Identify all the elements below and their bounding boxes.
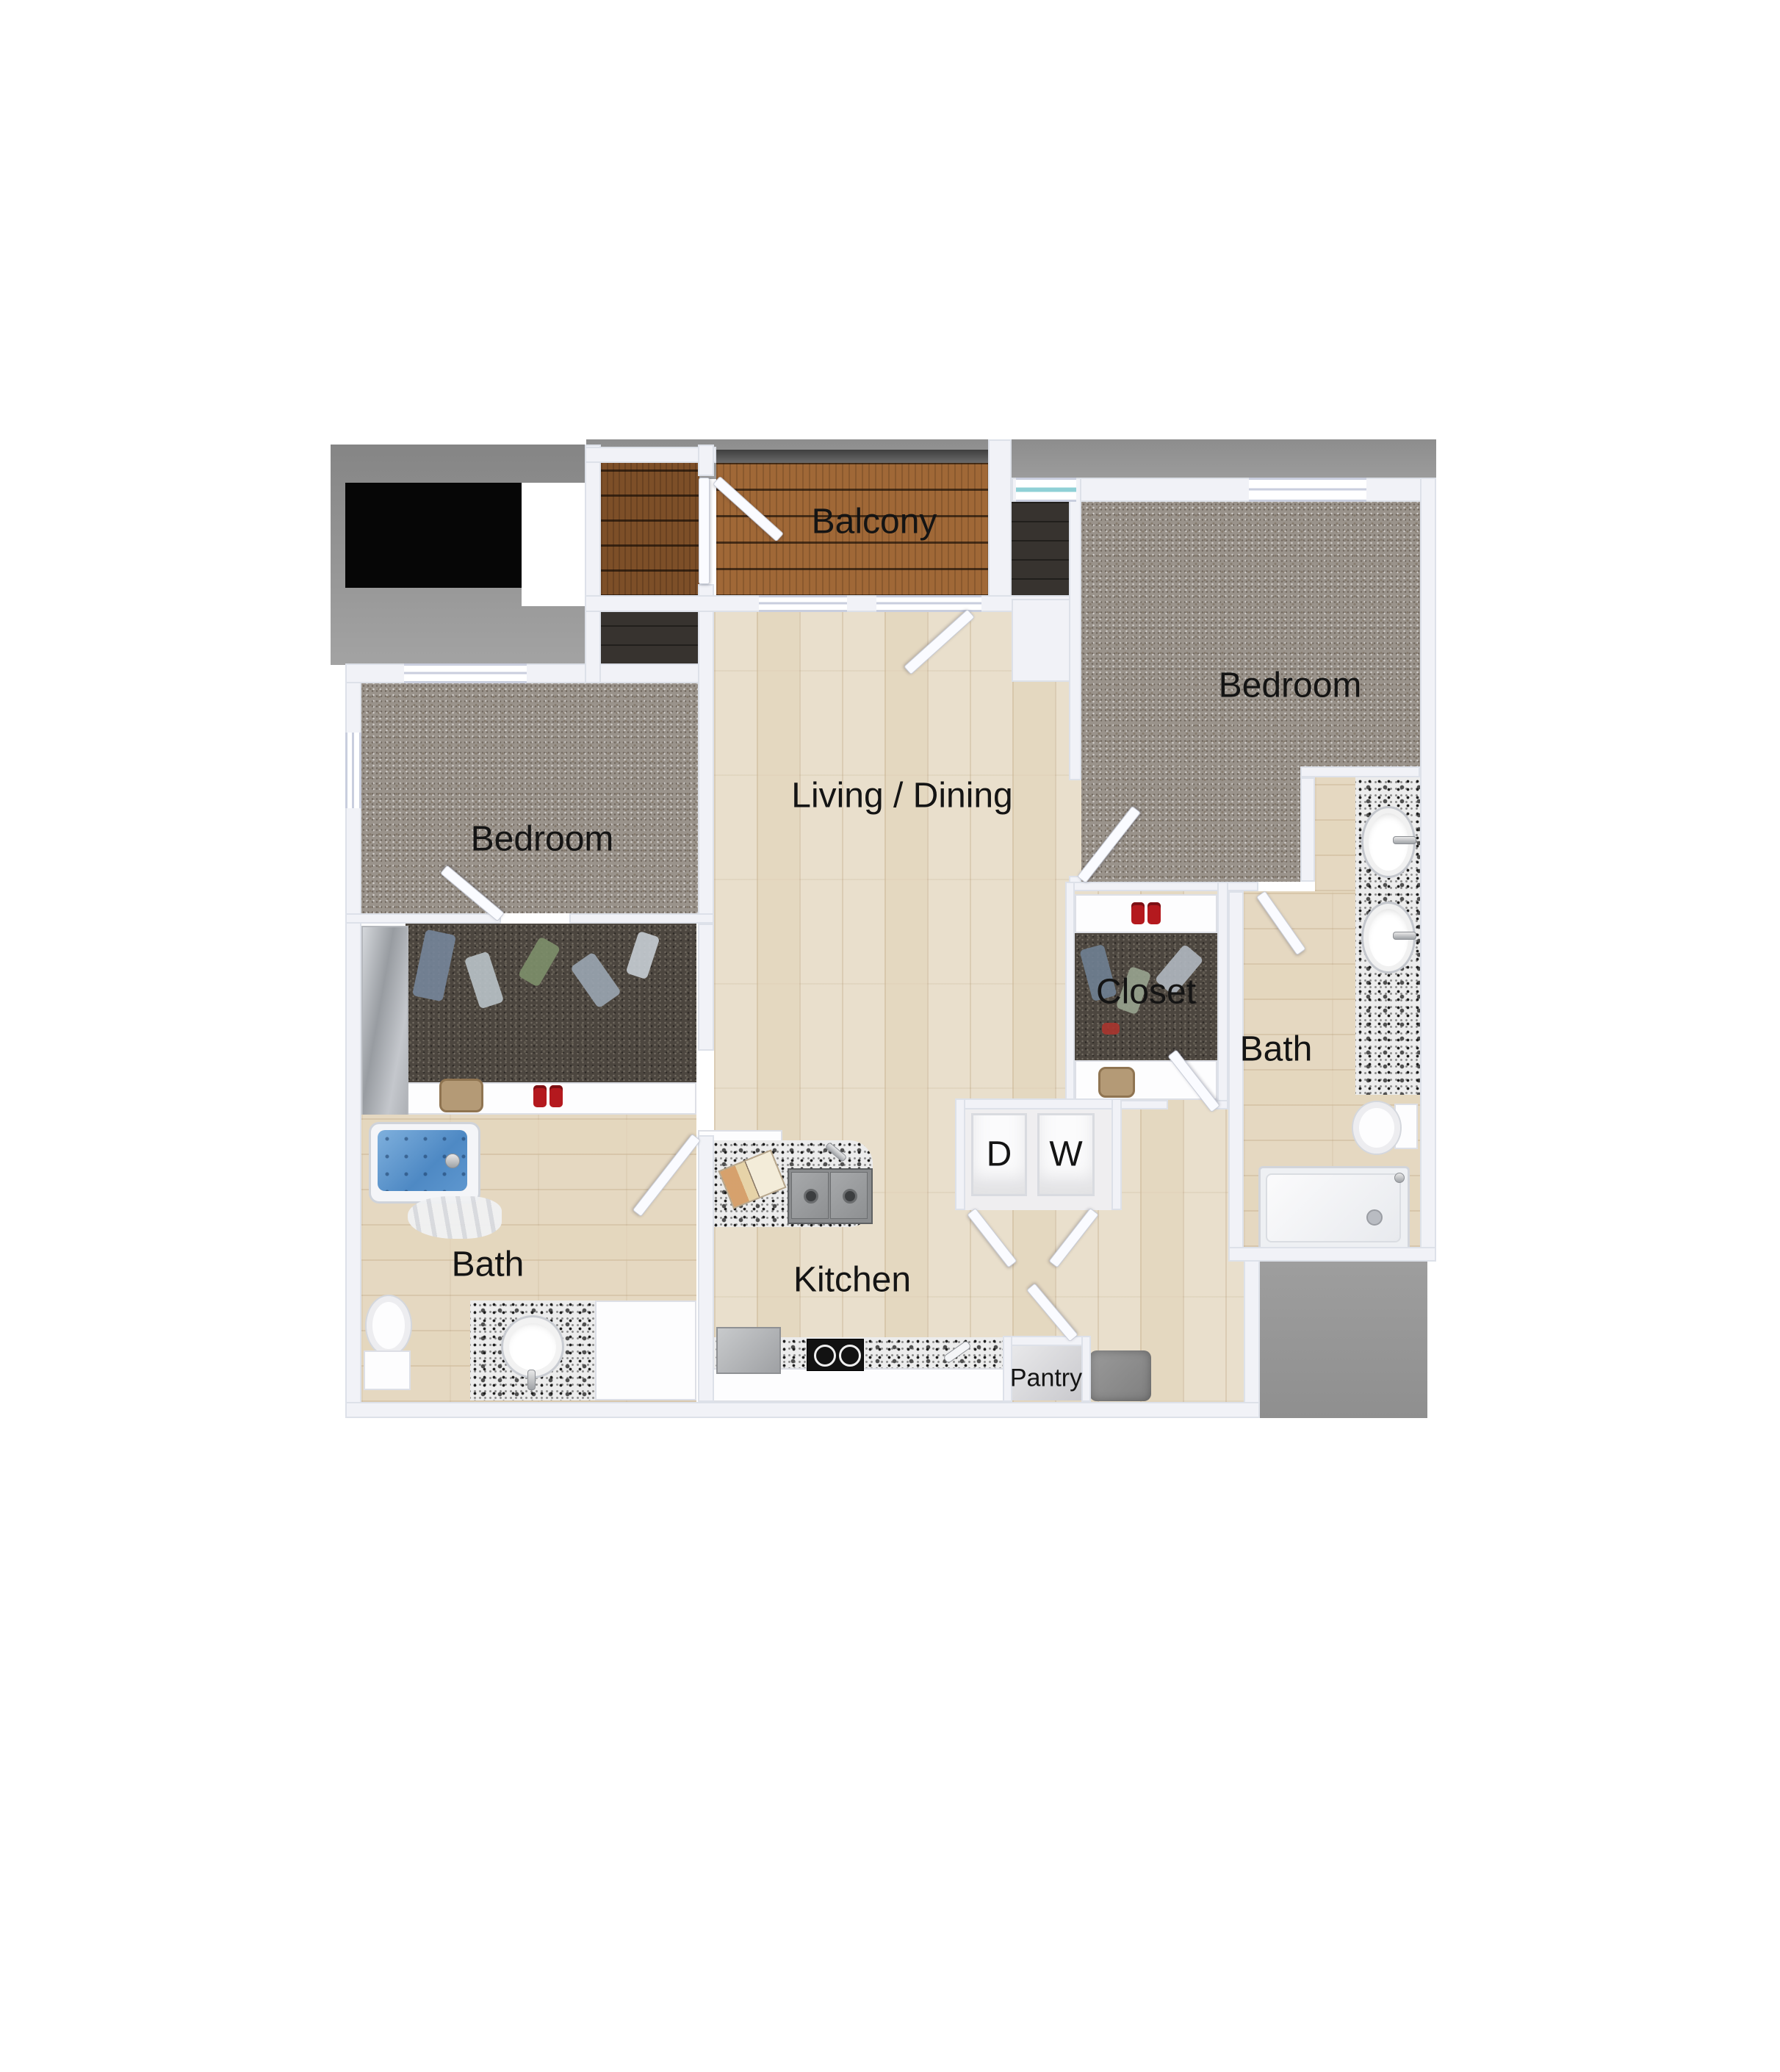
room-label-closet: Closet — [1096, 972, 1196, 1012]
wall — [988, 439, 1012, 612]
wall — [345, 663, 714, 683]
pantry-wall — [1081, 1336, 1091, 1402]
bag-deco — [439, 1079, 483, 1112]
bath-right-shower-tray — [1266, 1173, 1401, 1242]
wall — [955, 1098, 1122, 1109]
room-label-bedroom-left: Bedroom — [471, 819, 614, 860]
entry-mat — [1089, 1350, 1151, 1401]
balcony-railing — [716, 450, 988, 463]
closet-right-top-shelf — [1075, 894, 1217, 933]
wall — [698, 1135, 714, 1402]
wall — [1228, 1247, 1436, 1262]
faucet-icon — [1393, 932, 1416, 940]
wall — [1217, 882, 1228, 1109]
entry-niche-left — [601, 612, 698, 665]
room-label-living-dining: Living / Dining — [791, 776, 1013, 816]
outdoor-shadow-bottom-right — [1260, 1262, 1427, 1418]
sink-drain-icon — [843, 1189, 857, 1204]
pantry-wall — [1003, 1336, 1091, 1346]
bedroom-right-alcove-floor — [1081, 766, 1300, 882]
window — [1016, 478, 1076, 502]
window — [759, 595, 847, 612]
room-label-bath-left: Bath — [452, 1245, 525, 1285]
red-shoes-deco — [1131, 902, 1145, 924]
red-shoes-deco — [533, 1085, 547, 1107]
bath-right-toilet-bowl — [1352, 1101, 1402, 1155]
red-shoes-deco — [1147, 902, 1161, 924]
shower-handle-icon — [1394, 1173, 1405, 1183]
room-label-balcony: Balcony — [812, 502, 937, 542]
wall — [1069, 882, 1258, 891]
stove-burner-icon — [839, 1345, 861, 1367]
bag-deco — [1098, 1067, 1135, 1098]
wall — [1069, 478, 1081, 780]
window — [345, 733, 361, 808]
bath-left-toilet-bowl — [365, 1295, 412, 1356]
room-label-bath-right: Bath — [1240, 1029, 1313, 1070]
wall — [1300, 777, 1315, 882]
neighbor-black-area — [345, 483, 522, 588]
wall — [345, 1402, 1260, 1418]
faucet-icon — [527, 1370, 536, 1390]
closet-left-mirror — [361, 926, 408, 1118]
wall — [1420, 478, 1436, 1262]
wall — [1300, 766, 1420, 777]
floor-plan-canvas: Balcony Bedroom Bedroom Living / Dining … — [0, 0, 1780, 2072]
wall — [585, 445, 601, 683]
wall — [1111, 1098, 1122, 1210]
tub-faucet-icon — [445, 1154, 460, 1168]
bath-left-toilet-tank — [364, 1350, 411, 1390]
wall — [698, 584, 714, 924]
wall — [698, 924, 714, 1051]
wall — [345, 913, 501, 924]
clothes-deco — [1102, 1023, 1120, 1035]
faucet-icon — [1393, 836, 1416, 844]
entry-niche-right — [1012, 502, 1069, 599]
bedroom-right-floor — [1081, 502, 1420, 766]
wall — [1065, 882, 1075, 1109]
window — [404, 663, 527, 683]
balcony-storage-floor — [601, 463, 699, 597]
towel-deco — [408, 1196, 502, 1239]
outdoor-white-notch — [522, 483, 586, 606]
wall — [1012, 599, 1070, 682]
wall — [585, 447, 716, 463]
wall — [698, 445, 714, 476]
room-label-pantry: Pantry — [1010, 1364, 1082, 1393]
bedroom-left-floor — [361, 683, 698, 913]
window — [1249, 478, 1366, 502]
room-label-bedroom-right: Bedroom — [1219, 666, 1362, 706]
sink-drain-icon — [804, 1189, 818, 1204]
shower-drain-icon — [1366, 1209, 1383, 1226]
door-storage-balcony — [699, 478, 710, 584]
fridge — [716, 1327, 781, 1374]
bath-right-floor-strip — [1315, 777, 1355, 891]
label-washer: W — [1049, 1134, 1082, 1175]
wall — [569, 913, 714, 924]
wall — [955, 1098, 965, 1210]
wall — [1244, 1247, 1260, 1418]
room-label-kitchen: Kitchen — [793, 1260, 911, 1301]
bath-left-cabinet — [595, 1301, 696, 1400]
stove-burner-icon — [814, 1345, 836, 1367]
red-shoes-deco — [550, 1085, 563, 1107]
label-dryer: D — [987, 1134, 1012, 1175]
wall — [1228, 891, 1244, 1262]
